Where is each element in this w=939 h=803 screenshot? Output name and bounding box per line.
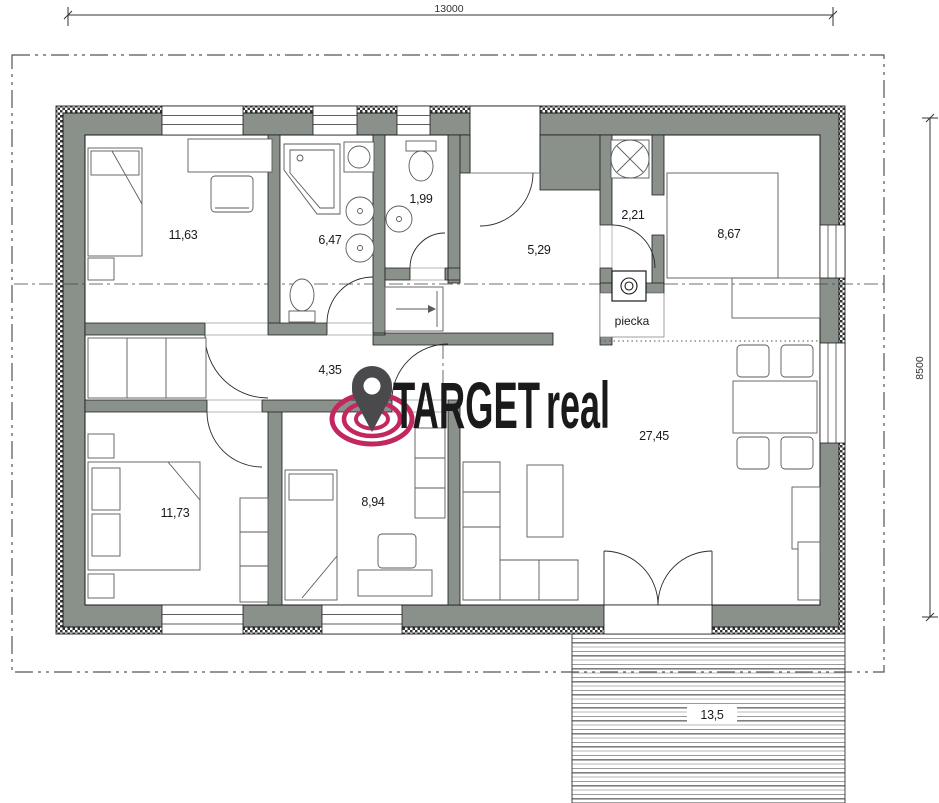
pillow [289, 474, 333, 500]
nightstand [88, 574, 114, 598]
furniture-utility [611, 140, 649, 178]
window [397, 106, 430, 135]
floor-plan-page: 13000 8500 [0, 0, 939, 803]
nightstand [88, 434, 114, 458]
room-label-corridor: 4,35 [318, 363, 341, 377]
terrace-door-opening [604, 605, 712, 634]
sink [386, 206, 412, 232]
nightstand [88, 258, 114, 280]
chair [781, 437, 813, 469]
wardrobe [240, 498, 268, 602]
pillow [92, 514, 120, 556]
tv-cabinet [792, 487, 820, 549]
room-label-bedroom-left: 11,73 [161, 506, 190, 520]
chair [737, 437, 769, 469]
wardrobe [88, 338, 206, 398]
logo-text-primary: TARGET [393, 368, 540, 442]
window [162, 605, 243, 634]
room-label-wc: 1,99 [409, 192, 432, 206]
desk [188, 139, 272, 172]
chair [781, 345, 813, 377]
room-label-utility: 2,21 [621, 208, 644, 222]
room-label-bathroom: 6,47 [318, 233, 341, 247]
chair [211, 176, 253, 212]
room-label-terrace: 13,5 [700, 708, 723, 722]
toilet [406, 141, 436, 151]
washing-machine [344, 142, 374, 172]
window [162, 106, 243, 135]
tv-cabinet [798, 542, 820, 600]
dimension-height-label: 8500 [914, 356, 926, 380]
room-label-bedroom-top: 11,63 [169, 228, 198, 242]
floor-plan-drawing: 13000 8500 [0, 0, 939, 803]
room-label-kitchen: 8,67 [717, 227, 740, 241]
window [322, 605, 402, 634]
room-label-living: 27,45 [639, 429, 669, 443]
toilet [289, 311, 315, 322]
coffee-table [527, 465, 563, 537]
chair [378, 534, 416, 568]
sink [346, 234, 374, 262]
stove-label: piecka [615, 314, 650, 328]
dimension-width-label: 13000 [434, 3, 463, 15]
pillow [91, 151, 139, 175]
room-label-bedroom-middle: 8,94 [361, 495, 384, 509]
dining-table [733, 381, 817, 433]
stove-icon [612, 271, 646, 301]
logo-text-accent: real [546, 368, 610, 442]
entrance-recess [470, 106, 540, 173]
window [313, 106, 357, 135]
window [820, 225, 845, 278]
window [820, 343, 845, 443]
sink [346, 197, 374, 225]
chair [737, 345, 769, 377]
room-label-hall: 5,29 [527, 243, 550, 257]
pillow [92, 468, 120, 510]
desk [358, 570, 432, 596]
